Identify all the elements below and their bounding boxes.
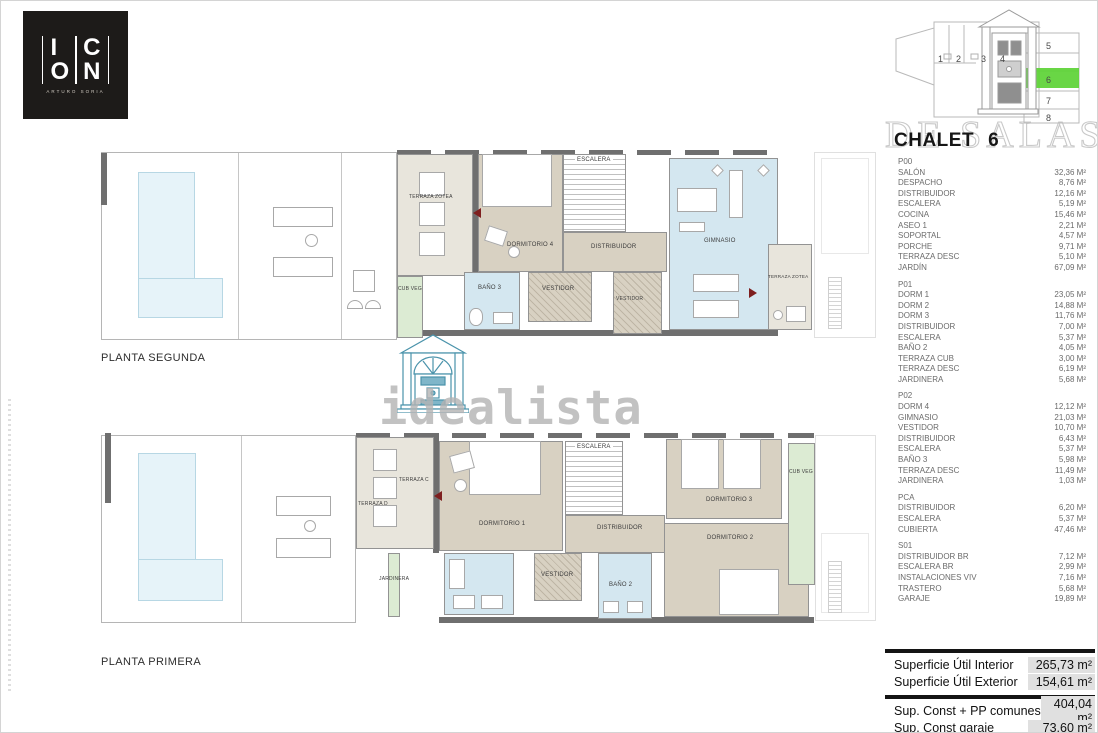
area-row-label: DORM 3: [898, 311, 929, 322]
chalet-title-text: CHALET: [894, 130, 974, 151]
area-row: JARDÍN67,09 M²: [898, 263, 1086, 274]
area-row-label: GARAJE: [898, 594, 930, 605]
room-label: TERRAZA ZOTEA: [409, 194, 453, 200]
area-row-label: ESCALERA: [898, 514, 941, 525]
area-section-code: P01: [898, 280, 1086, 291]
area-row-label: JARDINERA: [898, 375, 943, 386]
room-label: DISTRIBUIDOR: [591, 244, 636, 250]
summary-value: 265,73 m²: [1028, 657, 1095, 673]
area-row-label: ESCALERA: [898, 444, 941, 455]
bed: [719, 569, 779, 615]
area-row-label: TERRAZA CUB: [898, 354, 954, 365]
edge-vertical-text: [8, 399, 11, 694]
exterior-stairs: [828, 561, 842, 613]
area-row-value: 9,71 M²: [1059, 242, 1086, 253]
area-row-label: CUBIERTA: [898, 525, 938, 536]
area-row-value: 5,37 M²: [1059, 514, 1086, 525]
garden-furniture: [353, 270, 375, 292]
area-row-value: 21,03 M²: [1054, 413, 1086, 424]
room-label: JARDINERA: [379, 576, 409, 582]
room-distribuidor: [563, 232, 667, 272]
area-row: JARDINERA5,68 M²: [898, 375, 1086, 386]
room-cub-veg: [788, 443, 815, 585]
area-row-value: 23,05 M²: [1054, 290, 1086, 301]
page-title: CHALET6: [894, 130, 999, 152]
plot-number-7: 7: [1046, 96, 1051, 106]
sink: [493, 312, 513, 324]
area-section-PCA: PCADISTRIBUIDOR6,20 M²ESCALERA5,37 M²CUB…: [898, 493, 1086, 535]
sun-lounger: [273, 257, 333, 277]
plot-number-2: 2: [956, 54, 961, 64]
room-label: DORMITORIO 2: [707, 535, 753, 541]
summary-label: Sup. Const + PP comunes: [885, 704, 1041, 718]
developer-logo-letters: I C O N: [43, 36, 107, 84]
area-row: SALÓN32,36 M²: [898, 168, 1086, 179]
area-row-value: 8,76 M²: [1059, 178, 1086, 189]
area-row: TERRAZA CUB3,00 M²: [898, 354, 1086, 365]
room-label: BAÑO 3: [478, 285, 501, 291]
area-row: DISTRIBUIDOR7,00 M²: [898, 322, 1086, 333]
area-row: INSTALACIONES VIV7,16 M²: [898, 573, 1086, 584]
area-row-label: DISTRIBUIDOR: [898, 503, 955, 514]
area-row-value: 7,16 M²: [1059, 573, 1086, 584]
area-row-label: DORM 1: [898, 290, 929, 301]
neighbor-area: [821, 158, 869, 254]
garden-table: [305, 234, 318, 247]
area-row-value: 5,68 M²: [1059, 375, 1086, 386]
sink: [453, 595, 475, 609]
area-row-value: 11,76 M²: [1055, 311, 1086, 322]
summary-row: Superficie Útil Interior 265,73 m²: [885, 656, 1095, 673]
area-row: DORM 412,12 M²: [898, 402, 1086, 413]
area-row: DORM 123,05 M²: [898, 290, 1086, 301]
terrace-furniture: [373, 477, 397, 499]
bed: [482, 154, 552, 207]
logo-letter: O: [42, 60, 77, 84]
area-row-label: SALÓN: [898, 168, 925, 179]
area-row-value: 2,21 M²: [1059, 221, 1086, 232]
area-row: DISTRIBUIDOR12,16 M²: [898, 189, 1086, 200]
garden-divider: [238, 153, 239, 339]
floor-label-lower: PLANTA PRIMERA: [101, 656, 201, 668]
room-label: CUB VEG: [789, 469, 813, 475]
room-distribuidor: [565, 515, 665, 553]
area-row: CUBIERTA47,46 M²: [898, 525, 1086, 536]
room-escalera: [565, 441, 623, 515]
logo-letter: C: [75, 36, 108, 60]
area-row: DISTRIBUIDOR BR7,12 M²: [898, 552, 1086, 563]
area-row-label: JARDINERA: [898, 476, 943, 487]
area-row-value: 11,49 M²: [1055, 466, 1086, 477]
area-row-label: DORM 2: [898, 301, 929, 312]
plan-planta-segunda: TERRAZA ZOTEA CUB VEG DORMITORIO 4 ESCAL…: [101, 150, 877, 347]
plot-number-3: 3: [981, 54, 986, 64]
room-label: BAÑO 2: [609, 582, 632, 588]
terrace-furniture: [373, 449, 397, 471]
exterior-wall: [397, 330, 778, 336]
area-row-value: 5,37 M²: [1059, 333, 1086, 344]
area-row-value: 6,19 M²: [1059, 364, 1086, 375]
area-row-value: 12,16 M²: [1054, 189, 1086, 200]
room-label: ESCALERA: [575, 157, 613, 163]
area-row-value: 7,12 M²: [1059, 552, 1086, 563]
room-label: TERRAZA C: [399, 477, 429, 483]
area-row-label: DISTRIBUIDOR BR: [898, 552, 969, 563]
area-row-value: 5,98 M²: [1059, 455, 1086, 466]
area-row-value: 10,70 M²: [1054, 423, 1086, 434]
bed: [469, 441, 541, 495]
chalet-number: 6: [988, 130, 999, 151]
area-tables: P00SALÓN32,36 M²DESPACHO8,76 M²DISTRIBUI…: [898, 157, 1086, 611]
area-row-label: INSTALACIONES VIV: [898, 573, 977, 584]
area-row: BAÑO 24,05 M²: [898, 343, 1086, 354]
logo-letter: I: [42, 36, 77, 60]
bathtub: [449, 559, 465, 589]
area-row-label: JARDÍN: [898, 263, 927, 274]
area-row-value: 15,46 M²: [1054, 210, 1086, 221]
area-row-label: DISTRIBUIDOR: [898, 322, 955, 333]
area-row-value: 6,20 M²: [1059, 503, 1086, 514]
room-label: DORMITORIO 3: [706, 497, 752, 503]
garden-divider: [341, 153, 342, 339]
area-row-value: 7,00 M²: [1059, 322, 1086, 333]
area-row-value: 32,36 M²: [1054, 168, 1086, 179]
gym-bench: [679, 222, 705, 232]
room-label: TERRAZA ZOTEA: [768, 274, 808, 279]
area-row-value: 14,88 M²: [1054, 301, 1086, 312]
bed: [681, 439, 719, 489]
area-row: JARDINERA1,03 M²: [898, 476, 1086, 487]
siteplan-door-icon: [978, 10, 1039, 114]
area-row-value: 5,10 M²: [1059, 252, 1086, 263]
area-row-label: ASEO 1: [898, 221, 927, 232]
terrace-furniture: [786, 306, 806, 322]
sun-lounger: [273, 207, 333, 227]
area-row-label: BAÑO 2: [898, 343, 927, 354]
area-section-code: PCA: [898, 493, 1086, 504]
area-row-label: DISTRIBUIDOR: [898, 189, 955, 200]
area-row: COCINA15,46 M²: [898, 210, 1086, 221]
site-plan: 1 2 3 4 5 6 7 8: [894, 5, 1096, 125]
side-table: [454, 479, 467, 492]
sun-lounger: [276, 538, 331, 558]
area-row-label: GIMNASIO: [898, 413, 938, 424]
area-row-value: 4,57 M²: [1059, 231, 1086, 242]
area-row: TRASTERO5,68 M²: [898, 584, 1086, 595]
room-vestidor-2: [613, 272, 662, 334]
gym-equipment: [729, 170, 743, 218]
area-row: BAÑO 35,98 M²: [898, 455, 1086, 466]
room-label: GIMNASIO: [704, 238, 736, 244]
terrace-furniture: [419, 202, 445, 226]
area-row-value: 47,46 M²: [1054, 525, 1086, 536]
area-row: VESTIDOR10,70 M²: [898, 423, 1086, 434]
plan-planta-primera: TERRAZA C TERRAZA D JARDINERA DORMITORIO…: [101, 433, 877, 633]
garden-divider: [241, 436, 242, 622]
wall-segment: [105, 433, 111, 503]
terrace-furniture: [419, 172, 445, 196]
area-row-label: BAÑO 3: [898, 455, 927, 466]
plot-number-1: 1: [938, 54, 943, 64]
floorplan-sheet: I C O N ARTURO SORIA TERRAZA ZOTEA CUB V: [0, 0, 1098, 733]
bed: [723, 439, 761, 489]
room-label: VESTIDOR: [542, 286, 574, 292]
area-section-P00: P00SALÓN32,36 M²DESPACHO8,76 M²DISTRIBUI…: [898, 157, 1086, 274]
area-row: GARAJE19,89 M²: [898, 594, 1086, 605]
room-label: VESTIDOR: [541, 572, 573, 578]
room-label: DORMITORIO 4: [507, 242, 553, 248]
area-row: TERRAZA DESC5,10 M²: [898, 252, 1086, 263]
area-row: DISTRIBUIDOR6,20 M²: [898, 503, 1086, 514]
garden-arc: [347, 300, 363, 309]
area-row-label: ESCALERA: [898, 199, 941, 210]
area-row: DESPACHO8,76 M²: [898, 178, 1086, 189]
area-row-value: 1,03 M²: [1059, 476, 1086, 487]
room-label: CUB VEG: [398, 286, 422, 292]
area-row-label: TERRAZA DESC: [898, 364, 959, 375]
entry-arrow: [473, 208, 481, 218]
summary-label: Superficie Útil Interior: [885, 658, 1014, 672]
idealista-watermark-text: idealista: [379, 381, 643, 436]
plot-number-4: 4: [1000, 54, 1005, 64]
area-row-value: 5,19 M²: [1059, 199, 1086, 210]
entry-arrow: [749, 288, 757, 298]
area-row-value: 6,43 M²: [1059, 434, 1086, 445]
room-label: DISTRIBUIDOR: [597, 525, 642, 531]
area-section-S01: S01DISTRIBUIDOR BR7,12 M²ESCALERA BR2,99…: [898, 541, 1086, 605]
summary-label: Superficie Útil Exterior: [885, 675, 1018, 689]
area-row-label: PORCHE: [898, 242, 932, 253]
gym-mat: [693, 300, 739, 318]
area-row-label: ESCALERA: [898, 333, 941, 344]
area-row: ESCALERA5,19 M²: [898, 199, 1086, 210]
area-row-value: 67,09 M²: [1054, 263, 1086, 274]
area-row: DORM 311,76 M²: [898, 311, 1086, 322]
area-section-code: P02: [898, 391, 1086, 402]
area-row-label: COCINA: [898, 210, 929, 221]
toilet: [469, 308, 483, 326]
area-row-label: VESTIDOR: [898, 423, 939, 434]
area-row: ESCALERA BR2,99 M²: [898, 562, 1086, 573]
area-row-label: TERRAZA DESC: [898, 252, 959, 263]
summary-row: Superficie Útil Exterior 154,61 m²: [885, 673, 1095, 690]
plot-number-8: 8: [1046, 113, 1051, 123]
developer-logo: I C O N ARTURO SORIA: [23, 11, 128, 119]
summary-label: Sup. Const garaje: [885, 721, 994, 733]
room-escalera: [563, 154, 626, 232]
room-label: ESCALERA: [575, 444, 613, 450]
summary-row: Sup. Const garaje 73,60 m²: [885, 719, 1095, 733]
wall-segment: [101, 153, 107, 205]
area-row: DORM 214,88 M²: [898, 301, 1086, 312]
area-row-value: 5,68 M²: [1059, 584, 1086, 595]
area-section-code: S01: [898, 541, 1086, 552]
area-row-label: SOPORTAL: [898, 231, 941, 242]
area-section-P01: P01DORM 123,05 M²DORM 214,88 M²DORM 311,…: [898, 280, 1086, 386]
area-row-label: ESCALERA BR: [898, 562, 954, 573]
area-row-label: DESPACHO: [898, 178, 942, 189]
summary-divider: [885, 649, 1095, 653]
area-section-P02: P02DORM 412,12 M²GIMNASIO21,03 M²VESTIDO…: [898, 391, 1086, 486]
garden-arc: [365, 300, 381, 309]
room-label: VESTIDOR: [616, 296, 643, 302]
area-row-value: 19,89 M²: [1054, 594, 1086, 605]
floor-label-upper: PLANTA SEGUNDA: [101, 352, 205, 364]
room-jardinera: [388, 553, 400, 617]
pool: [139, 559, 223, 601]
area-section-code: P00: [898, 157, 1086, 168]
sink: [603, 601, 619, 613]
idealista-watermark: idealista: [379, 331, 689, 443]
terrace-table: [773, 310, 783, 320]
summary-table: Superficie Útil Interior 265,73 m² Super…: [885, 647, 1095, 733]
area-row-label: DISTRIBUIDOR: [898, 434, 955, 445]
area-row: ESCALERA5,37 M²: [898, 333, 1086, 344]
area-row: ESCALERA5,37 M²: [898, 444, 1086, 455]
area-row: TERRAZA DESC11,49 M²: [898, 466, 1086, 477]
pool: [139, 278, 223, 318]
summary-value: 73,60 m²: [1028, 720, 1095, 733]
plot-number-6: 6: [1046, 75, 1051, 85]
summary-row: Sup. Const + PP comunes 404,04 m²: [885, 702, 1095, 719]
area-row: ASEO 12,21 M²: [898, 221, 1086, 232]
room-label: TERRAZA D: [358, 501, 388, 507]
gym-equipment: [677, 188, 717, 212]
garden-table: [304, 520, 316, 532]
room-vestidor: [528, 272, 592, 322]
area-row-value: 5,37 M²: [1059, 444, 1086, 455]
gym-mat: [693, 274, 739, 292]
sun-lounger: [276, 496, 331, 516]
area-row-label: TERRAZA DESC: [898, 466, 959, 477]
area-row-value: 4,05 M²: [1059, 343, 1086, 354]
entry-arrow: [434, 491, 442, 501]
area-row-label: DORM 4: [898, 402, 929, 413]
plot-number-5: 5: [1046, 41, 1051, 51]
exterior-stairs: [828, 277, 842, 329]
area-row: TERRAZA DESC6,19 M²: [898, 364, 1086, 375]
area-row-value: 3,00 M²: [1059, 354, 1086, 365]
area-row: ESCALERA5,37 M²: [898, 514, 1086, 525]
logo-letter: N: [75, 60, 108, 84]
terrace-furniture: [373, 505, 397, 527]
area-row: PORCHE9,71 M²: [898, 242, 1086, 253]
area-row-label: TRASTERO: [898, 584, 942, 595]
sink: [481, 595, 503, 609]
area-row-value: 2,99 M²: [1059, 562, 1086, 573]
logo-subtitle: ARTURO SORIA: [46, 89, 104, 94]
area-row-value: 12,12 M²: [1054, 402, 1086, 413]
terrace-furniture: [419, 232, 445, 256]
area-row: DISTRIBUIDOR6,43 M²: [898, 434, 1086, 445]
summary-value: 154,61 m²: [1028, 674, 1095, 690]
area-row: SOPORTAL4,57 M²: [898, 231, 1086, 242]
area-row: GIMNASIO21,03 M²: [898, 413, 1086, 424]
toilet: [627, 601, 643, 613]
room-label: DORMITORIO 1: [479, 521, 525, 527]
